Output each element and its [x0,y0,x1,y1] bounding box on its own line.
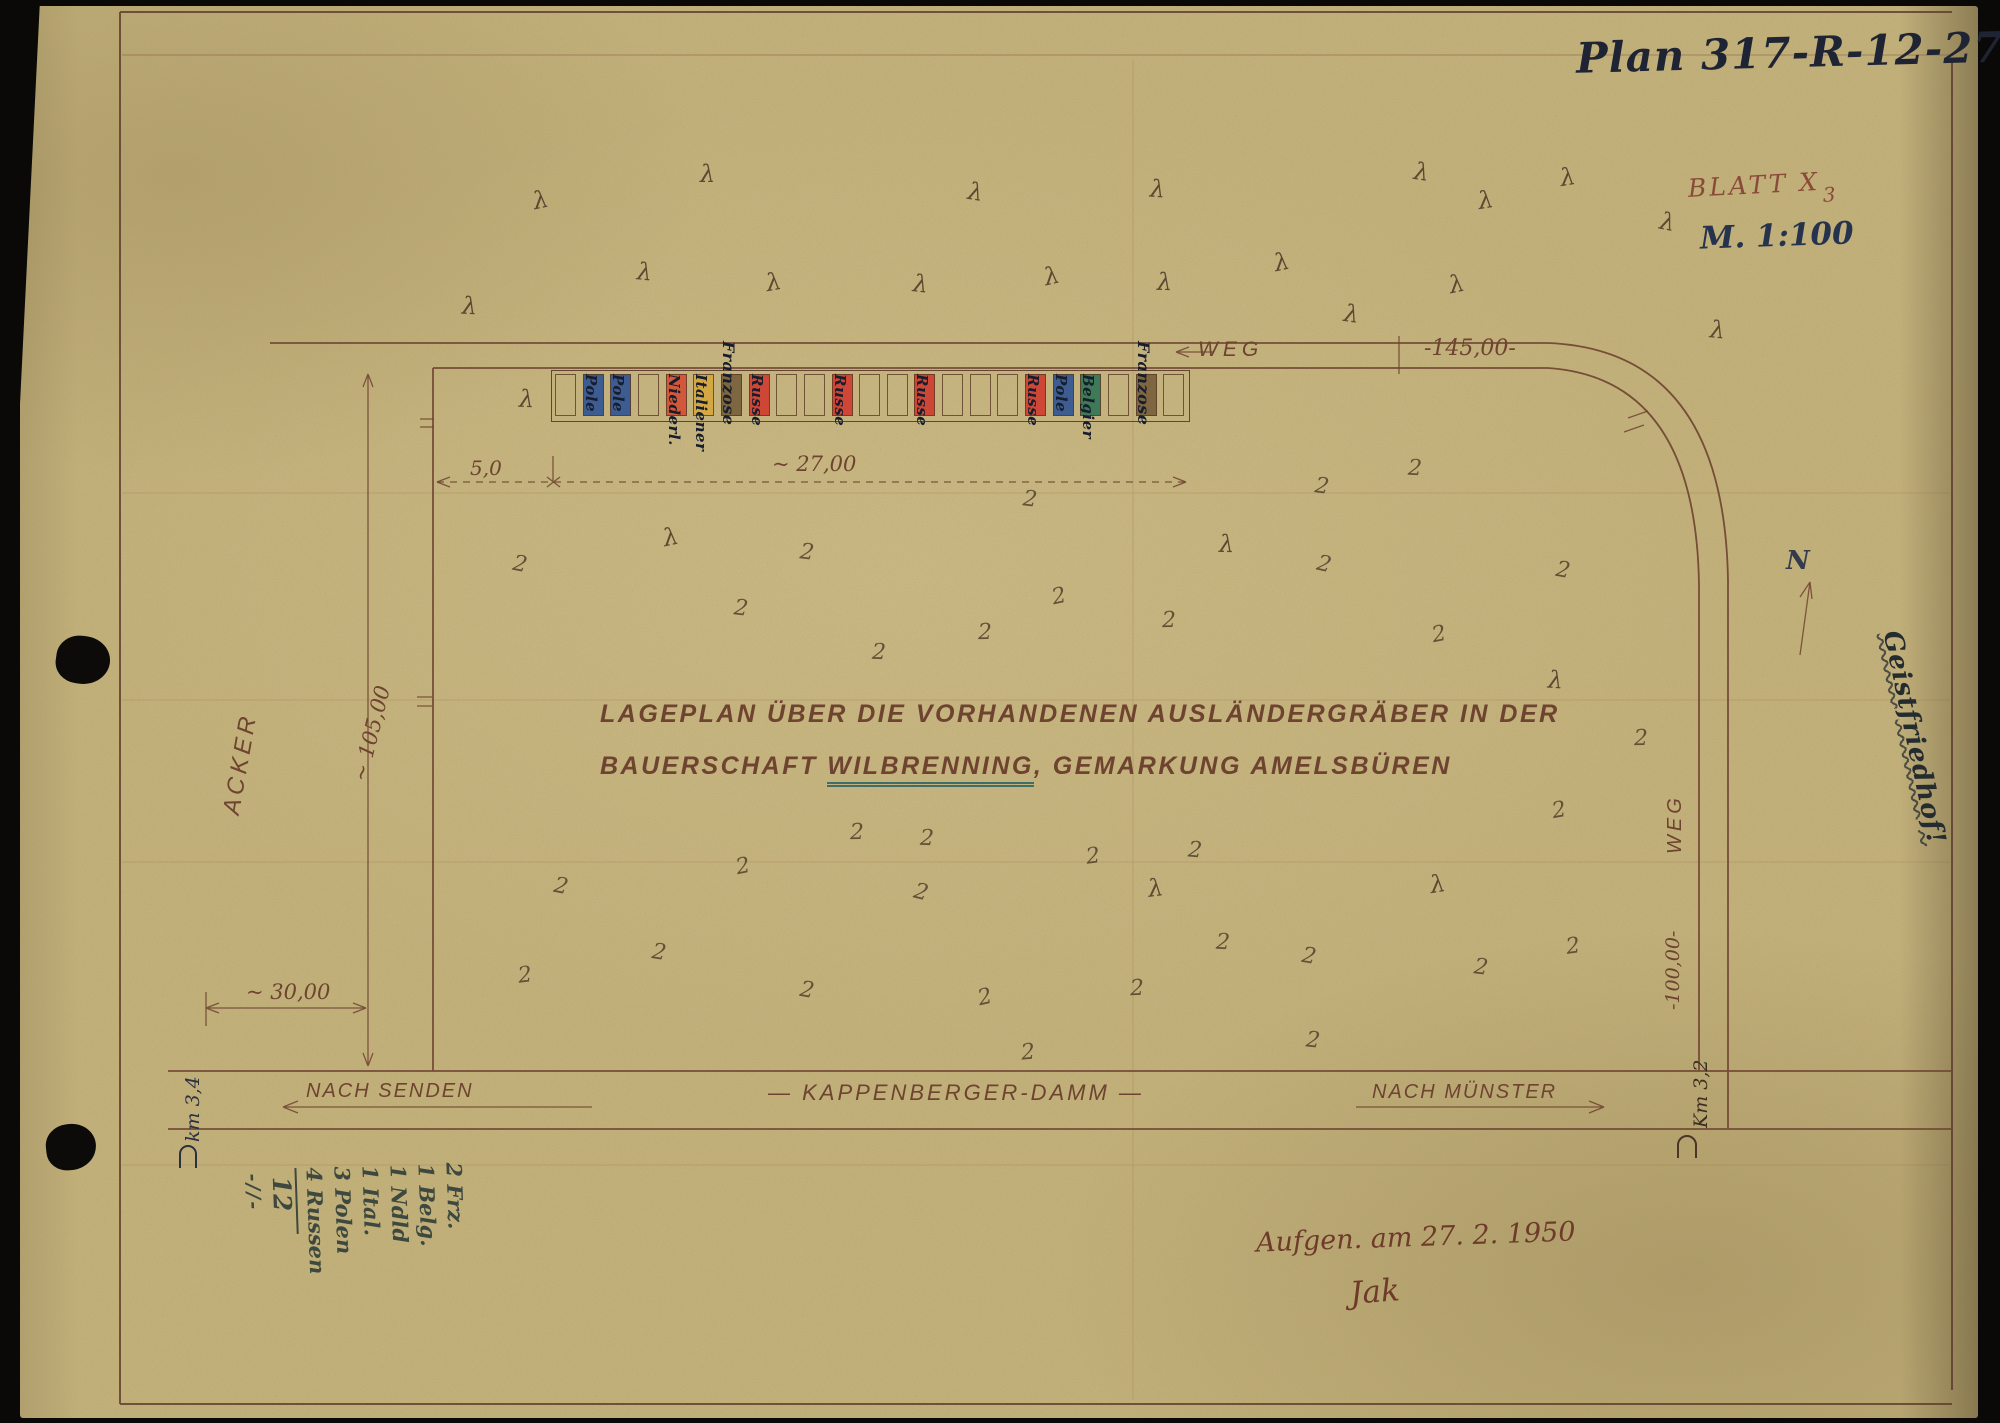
vegetation-mark: 2 [1215,930,1230,956]
vegetation-mark: 2 [920,826,935,851]
vegetation-mark: λ [1157,268,1173,296]
grave-cell [970,374,991,416]
grave-cell [776,374,797,416]
grave-label: Russe [831,374,849,426]
vegetation-mark: 2 [1305,1027,1322,1053]
vegetation-mark: 2 [872,640,887,665]
vegetation-mark: 2 [1634,726,1648,751]
plan-title-line1: LAGEPLAN ÜBER DIE VORHANDENEN AUSLÄNDERG… [600,700,1560,729]
grave-label: Belgier [1079,374,1097,439]
tally-entry: 1 Ital. [355,1165,388,1316]
dimension-100: -100,00- [1662,931,1684,1010]
tally-flourish: -//- [238,1169,271,1320]
vegetation-mark: λ [1219,530,1235,558]
scanned-plan-page: PolePoleNiederl.ItalienerFranzoseRusseRu… [0,0,2000,1423]
grave-cell [887,374,908,416]
grave-cell [859,374,880,416]
grave-cell [997,374,1018,416]
vegetation-mark: 2 [1085,843,1102,870]
km-marker-left: km 3,4 [182,1076,204,1142]
title-post: , GEMARKUNG AMELSBÜREN [1034,752,1452,780]
vegetation-mark: 2 [1407,456,1422,482]
grave-label: Niederl. [665,374,683,446]
direction-senden: NACH SENDEN [306,1080,474,1103]
grave-label: Russe [1024,374,1042,426]
grave-label: Russe [748,374,766,426]
grave-cell [638,374,659,416]
dimension-30: ~ 30,00 [246,980,330,1004]
grave-label: Pole [1052,374,1070,412]
km-marker-right: Km 3,2 [1690,1060,1712,1128]
grave-label: Italiener [692,374,710,451]
tally-entry: 1 Ndld [383,1164,416,1315]
tally-entry: 1 Belg. [411,1163,444,1314]
vegetation-mark: 2 [517,962,534,989]
vegetation-mark: λ [461,292,478,321]
road-label-weg-top: WEG [1198,338,1263,362]
grave-label: Pole [609,374,627,412]
vegetation-mark: λ [519,385,535,414]
road-label-kappenberger-damm: — KAPPENBERGER-DAMM — [768,1080,1144,1106]
vegetation-mark: 2 [1130,976,1145,1001]
grave-cell [555,374,576,416]
title-underlined-word: WILBRENNING [827,752,1034,787]
grave-label: Pole [582,374,600,412]
tally-entry: 4 Russen [299,1167,332,1318]
grave-label: Russe [913,374,931,426]
surveyor-signature: Jak [1349,1272,1401,1311]
sheet-index: 3 [1822,182,1839,207]
vegetation-mark: λ [1149,175,1166,204]
vegetation-mark: 2 [1162,608,1176,633]
vegetation-mark: λ [912,269,930,298]
grave-cell [1163,374,1184,416]
vegetation-mark: 2 [978,620,992,645]
grave-tally: 2 Frz.1 Belg.1 Ndld1 Ital.3 Polen4 Russe… [237,1162,472,1320]
vegetation-mark: 2 [1187,837,1203,863]
dimension-27: ~ 27,00 [772,452,856,476]
tally-entry: 2 Frz. [439,1162,472,1313]
tally-lines: 2 Frz.1 Belg.1 Ndld1 Ital.3 Polen4 Russe… [238,1162,472,1320]
grave-cell [804,374,825,416]
north-label: N [1786,546,1810,576]
sheet-label-text: BLATT X [1687,167,1821,203]
grave-cell [1108,374,1129,416]
grave-label: Franzose [1134,341,1153,425]
vegetation-mark: λ [1146,873,1165,903]
grave-label: Franzose [719,341,738,425]
vegetation-mark: 2 [850,820,864,845]
grave-cell [942,374,963,416]
road-label-weg-right: WEG [1664,794,1687,854]
dimension-5: 5,0 [470,456,502,480]
tally-entry: 3 Polen [327,1166,360,1317]
tally-total: 12 [266,1168,298,1235]
title-pre: BAUERSCHAFT [600,752,827,780]
vegetation-mark: λ [1547,666,1564,695]
vegetation-mark: λ [1709,315,1727,344]
scale-label: M. 1:100 [1699,215,1854,256]
direction-muenster: NACH MÜNSTER [1372,1081,1557,1104]
plan-title-line2: BAUERSCHAFT WILBRENNING, GEMARKUNG AMELS… [600,752,1452,781]
vegetation-mark: 2 [1020,1039,1036,1065]
vegetation-mark: λ [700,160,715,188]
dimension-145: -145,00- [1424,336,1516,361]
vegetation-mark: λ [636,257,654,286]
